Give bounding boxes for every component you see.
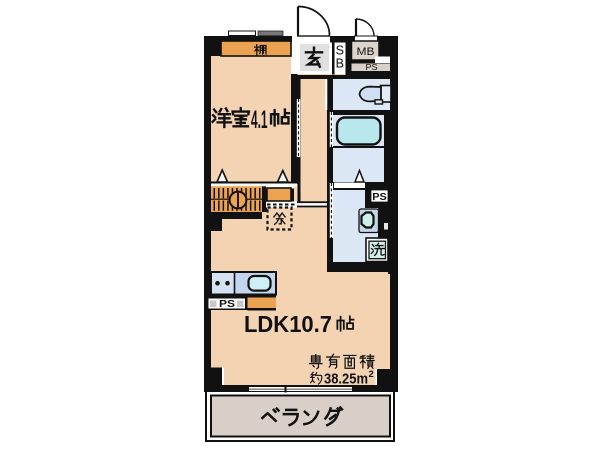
svg-text:2: 2 [369,369,374,380]
svg-text:MB: MB [357,46,375,58]
svg-text:PS: PS [372,191,387,203]
svg-text:38.25m: 38.25m [324,372,368,388]
svg-text:PS: PS [366,62,378,72]
svg-text:PS: PS [219,299,235,310]
svg-text:B: B [336,57,344,71]
svg-text:4.1: 4.1 [251,106,268,134]
svg-text:LDK10.7: LDK10.7 [244,311,332,337]
svg-text:S: S [336,44,344,58]
